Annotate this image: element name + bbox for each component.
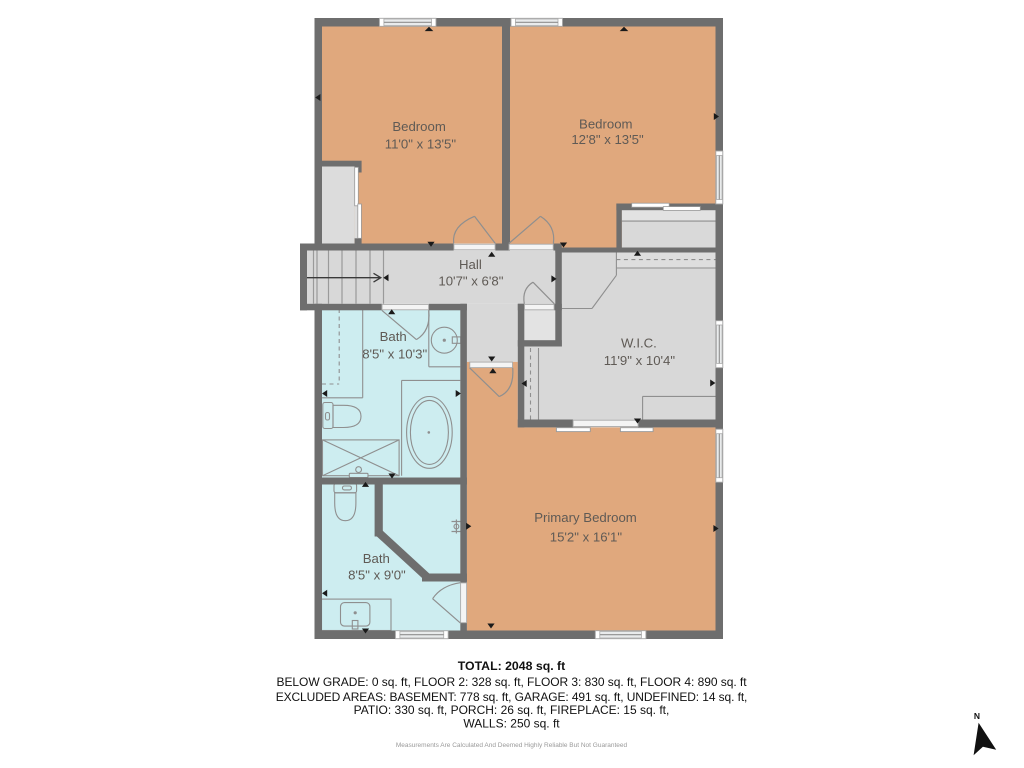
svg-text:Bath: Bath <box>380 329 407 344</box>
svg-text:PATIO: 330 sq. ft, PORCH: 26 s: PATIO: 330 sq. ft, PORCH: 26 sq. ft, FIR… <box>354 703 670 717</box>
svg-text:8'5" x 9'0": 8'5" x 9'0" <box>348 568 406 583</box>
svg-text:TOTAL: 2048 sq. ft: TOTAL: 2048 sq. ft <box>458 659 566 673</box>
svg-text:11'0" x 13'5": 11'0" x 13'5" <box>385 136 457 151</box>
svg-text:Primary Bedroom: Primary Bedroom <box>534 510 637 525</box>
svg-text:15'2" x 16'1": 15'2" x 16'1" <box>550 529 623 544</box>
svg-text:EXCLUDED AREAS: BASEMENT: 778: EXCLUDED AREAS: BASEMENT: 778 sq. ft, GA… <box>276 690 748 704</box>
svg-text:BELOW GRADE: 0 sq. ft, FLOOR 2: BELOW GRADE: 0 sq. ft, FLOOR 2: 328 sq. … <box>277 675 748 689</box>
svg-text:11'9" x 10'4": 11'9" x 10'4" <box>604 353 676 368</box>
svg-text:WALLS: 250 sq. ft: WALLS: 250 sq. ft <box>463 716 560 730</box>
svg-text:Bedroom: Bedroom <box>579 116 633 131</box>
svg-text:Bedroom: Bedroom <box>392 119 446 134</box>
svg-text:8'5" x 10'3": 8'5" x 10'3" <box>362 346 427 361</box>
svg-text:W.I.C.: W.I.C. <box>621 335 657 350</box>
svg-text:10'7" x 6'8": 10'7" x 6'8" <box>438 273 503 288</box>
svg-text:12'8" x 13'5": 12'8" x 13'5" <box>571 132 644 147</box>
svg-text:Measurements Are Calculated An: Measurements Are Calculated And Deemed H… <box>396 742 628 749</box>
svg-text:Bath: Bath <box>363 551 390 566</box>
svg-text:Hall: Hall <box>459 257 482 272</box>
svg-text:N: N <box>974 711 980 721</box>
